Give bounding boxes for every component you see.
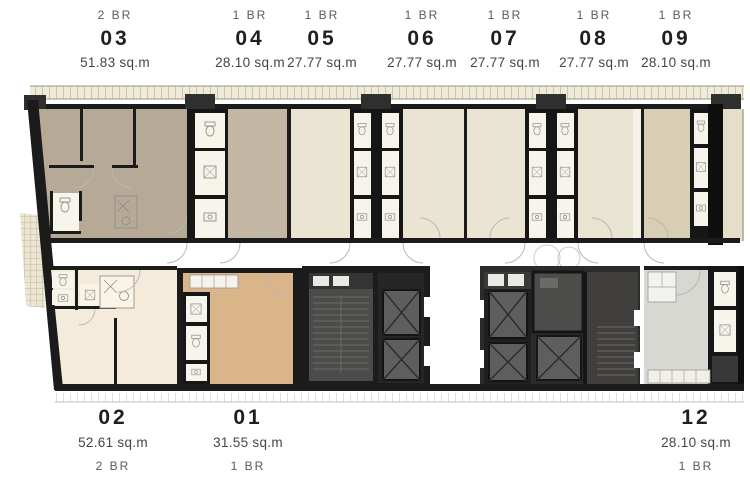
unit-02-bedrooms: 2 BR [58, 459, 168, 473]
unit-09-floor [644, 109, 693, 241]
unit-01-number: 01 [193, 406, 303, 430]
corridor-north-wall [37, 238, 740, 243]
bottom-outer-wall [55, 384, 744, 391]
floor-plan-page: 2 BR 03 51.83 sq.m 1 BR 04 28.10 sq.m 1 … [0, 0, 750, 500]
unit-09-area: 28.10 sq.m [621, 55, 731, 70]
corridor-door-swings [167, 243, 664, 263]
unit-06-floor [403, 109, 464, 241]
unit-05-label: 1 BR 05 27.77 sq.m [267, 8, 377, 70]
core-09 [690, 104, 723, 245]
unit-04-floor [228, 109, 287, 241]
unit-05-floor [291, 109, 350, 241]
unit-05-bedrooms: 1 BR [267, 8, 377, 22]
unit-01-bedrooms: 1 BR [193, 459, 303, 473]
unit-02-number: 02 [58, 406, 168, 430]
wall-06-07 [464, 109, 467, 241]
unit-03-bedrooms: 2 BR [60, 8, 170, 22]
unit-02-label: 02 52.61 sq.m 2 BR [58, 406, 168, 473]
unit-08-recess [633, 109, 641, 241]
unit-12-bedrooms: 1 BR [641, 459, 750, 473]
unit-02-area: 52.61 sq.m [58, 435, 168, 450]
unit-08-floor [578, 109, 633, 241]
core-03-04 [187, 109, 228, 241]
unit-03-area: 51.83 sq.m [60, 55, 170, 70]
unit-07-floor [467, 109, 525, 241]
unit-12-number: 12 [641, 406, 750, 430]
bottom-tick-band [55, 393, 744, 402]
unit-03-number: 03 [60, 27, 170, 51]
wall-08-09 [641, 109, 644, 241]
unit-12-label: 12 28.10 sq.m 1 BR [641, 406, 750, 473]
unit-03-label: 2 BR 03 51.83 sq.m [60, 8, 170, 70]
core-05-06 [350, 109, 403, 241]
unit-05-number: 05 [267, 27, 377, 51]
core-stairs-elevators-east [478, 266, 642, 388]
unit-09-number: 09 [621, 27, 731, 51]
core-07-08 [525, 109, 578, 241]
unit-09-bedrooms: 1 BR [621, 8, 731, 22]
unit-01-area: 31.55 sq.m [193, 435, 303, 450]
unit-09-label: 1 BR 09 28.10 sq.m [621, 8, 731, 70]
unit-01-label: 01 31.55 sq.m 1 BR [193, 406, 303, 473]
right-outer-strip [723, 109, 744, 241]
wall-04-05 [287, 109, 291, 241]
unit-12-area: 28.10 sq.m [641, 435, 750, 450]
unit-05-area: 27.77 sq.m [267, 55, 377, 70]
core-stairs-elevators-west [302, 266, 430, 388]
